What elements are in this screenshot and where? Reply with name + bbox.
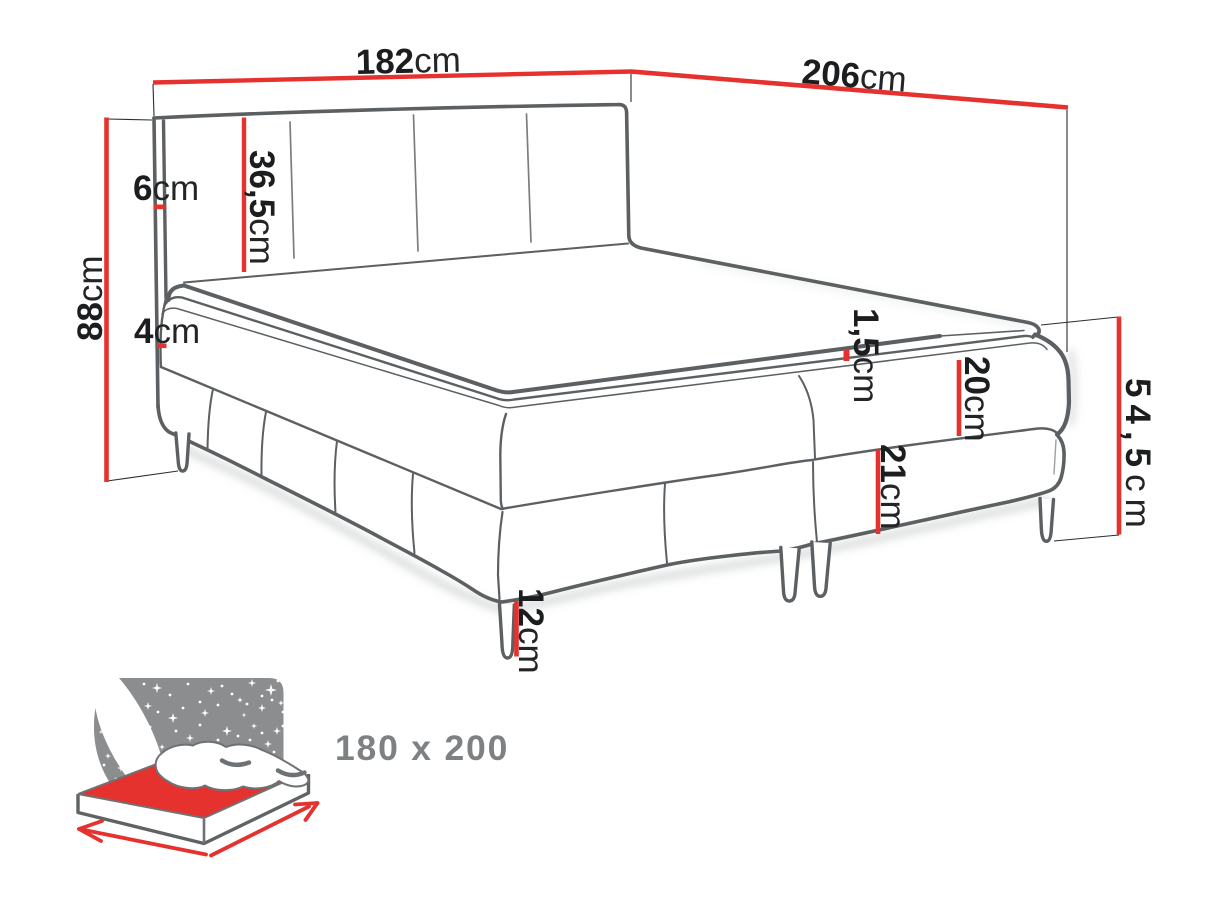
svg-text:1,5cm: 1,5cm [846,308,885,403]
svg-text:20cm: 20cm [957,356,996,442]
svg-text:54,5cm: 54,5cm [1118,378,1157,535]
svg-text:4cm: 4cm [134,312,200,351]
svg-text:88cm: 88cm [71,255,110,341]
svg-text:12cm: 12cm [511,588,550,674]
svg-text:21cm: 21cm [873,444,912,530]
svg-text:206cm: 206cm [800,52,908,99]
svg-text:180 x 200: 180 x 200 [335,728,509,768]
svg-text:6cm: 6cm [133,169,199,208]
svg-text:182cm: 182cm [355,41,461,82]
svg-text:36,5cm: 36,5cm [242,150,281,265]
